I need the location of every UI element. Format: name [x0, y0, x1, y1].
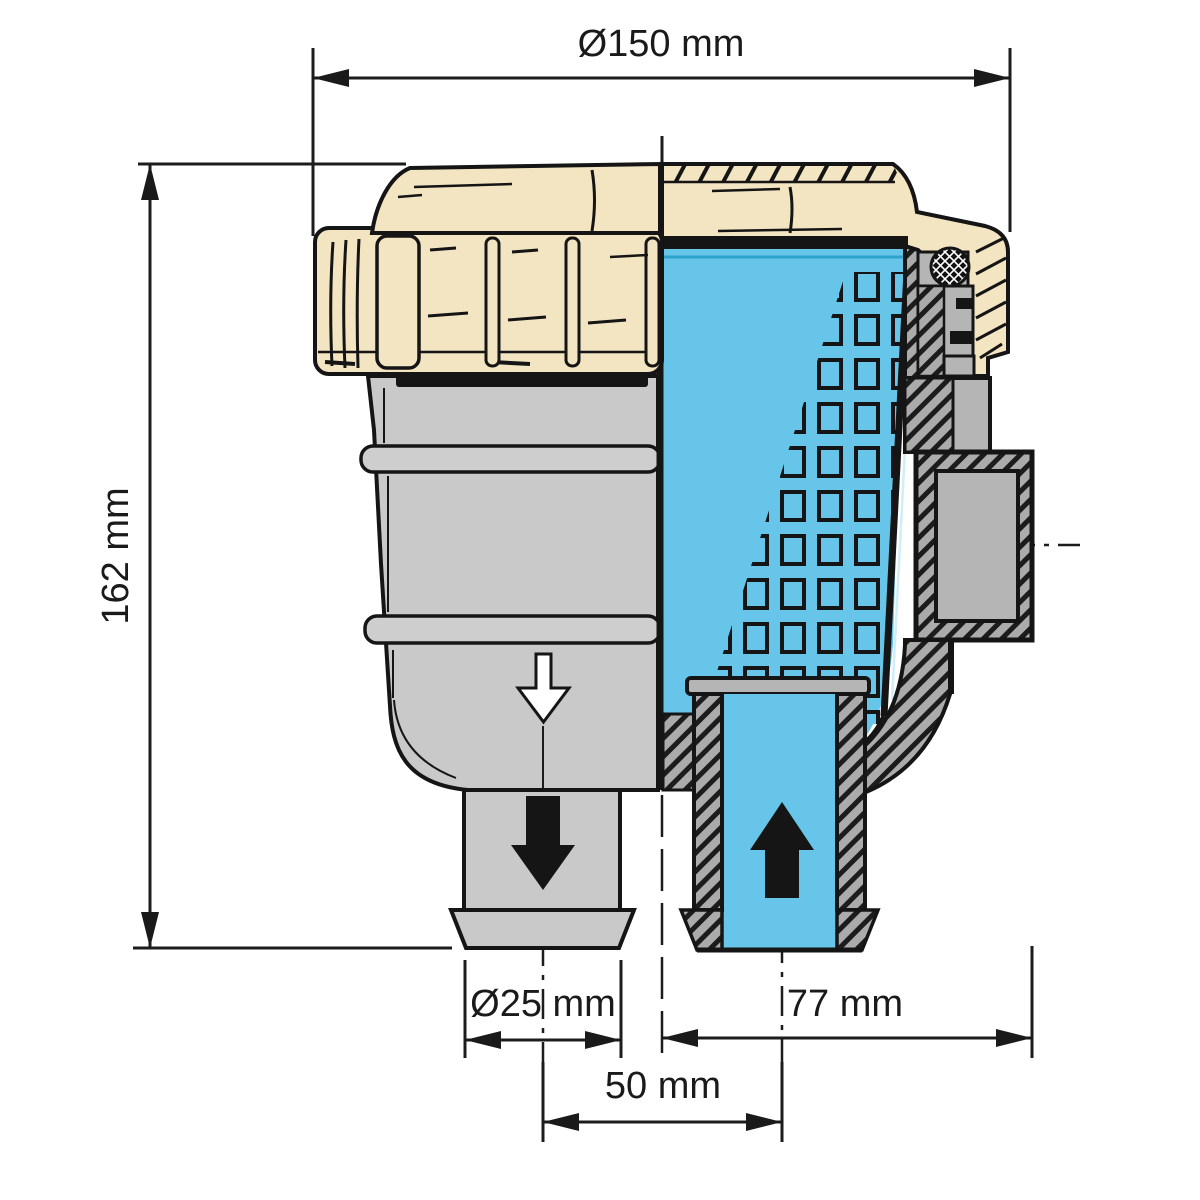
lid-dome	[372, 164, 660, 233]
dimension-pipe-spacing: 50 mm	[543, 1062, 782, 1142]
outlet-hose-barb	[451, 910, 634, 948]
lid-ridge-wide	[377, 236, 419, 368]
arrowhead-right	[585, 1031, 621, 1049]
inlet-pipe-rim	[687, 678, 869, 694]
arrowhead-right	[996, 1029, 1032, 1047]
lid-edge-rib-3	[357, 239, 359, 368]
arrowhead-right	[746, 1113, 782, 1131]
arrowhead-left	[662, 1029, 698, 1047]
dimension-center-to-outlet: 77 mm	[662, 946, 1032, 1058]
body-shell	[368, 376, 658, 790]
threaded-neck-hatch	[918, 286, 944, 376]
strainer-cross-section-diagram: Ø150 mm 162 mm Ø25 mm 77 mm 50 mm	[0, 0, 1200, 1200]
lid-ridge-3	[646, 238, 659, 366]
housing-wall-mid-hatch	[905, 378, 953, 452]
side-port-bore	[936, 471, 1018, 621]
arrowhead-top	[141, 164, 159, 200]
arrowhead-left	[465, 1031, 501, 1049]
bowl-floor-step	[663, 714, 694, 790]
lid-panel-tick-5	[512, 250, 538, 252]
lid-panel-tick-4	[430, 248, 456, 250]
lid-lip-mark-1	[325, 362, 355, 364]
diagram-canvas: Ø150 mm 162 mm Ø25 mm 77 mm 50 mm	[0, 0, 1200, 1200]
inlet-pipe	[681, 678, 878, 950]
inlet-barb-left	[681, 910, 722, 950]
lid-ridge-1	[486, 238, 499, 366]
lid-underside-shadow	[662, 236, 908, 249]
lid-knurl-band	[662, 164, 901, 182]
dim-label-pipe-spacing: 50 mm	[605, 1065, 721, 1107]
dim-label-hose-diameter: Ø25 mm	[470, 983, 616, 1025]
dim-label-top-diameter: Ø150 mm	[578, 23, 745, 65]
thread-notch-1	[956, 298, 974, 309]
dim-label-center-to-outlet: 77 mm	[787, 983, 903, 1025]
dim-label-overall-height: 162 mm	[95, 487, 137, 624]
arrowhead-left	[313, 69, 349, 87]
body-rib-lower	[365, 616, 660, 643]
lid-ridge-2	[566, 238, 579, 366]
o-ring-seal	[931, 248, 969, 286]
inlet-pipe-wall-left	[694, 694, 722, 910]
thread-step	[944, 356, 974, 376]
inlet-pipe-wall-right	[837, 694, 865, 910]
thread-notch-2	[950, 331, 974, 344]
arrowhead-bottom	[141, 912, 159, 948]
body-rib-upper	[361, 446, 660, 472]
arrowhead-left	[543, 1113, 579, 1131]
inlet-barb-right	[837, 910, 878, 950]
arrowhead-right	[974, 69, 1010, 87]
